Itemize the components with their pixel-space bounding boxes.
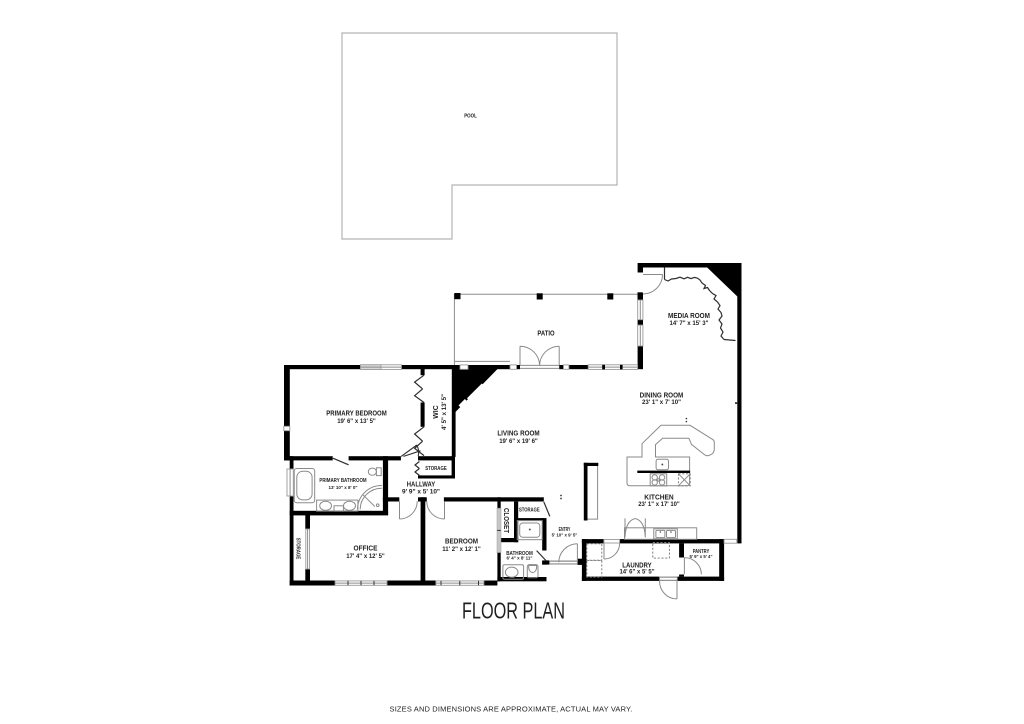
svg-text:WIC: WIC (431, 405, 440, 418)
svg-text:14' 7" x 15' 3": 14' 7" x 15' 3" (670, 320, 709, 327)
svg-text:5' 10" x 9' 5": 5' 10" x 9' 5" (552, 532, 578, 537)
svg-text:CLOSET: CLOSET (502, 508, 511, 534)
svg-text:PATIO: PATIO (537, 329, 555, 338)
svg-text:BEDROOM: BEDROOM (445, 536, 478, 545)
svg-text:23' 1" x 17' 10": 23' 1" x 17' 10" (638, 501, 680, 508)
svg-text:STORAGE: STORAGE (519, 507, 540, 513)
svg-text:LIVING ROOM: LIVING ROOM (497, 429, 539, 438)
svg-text:STORAGE: STORAGE (425, 466, 447, 472)
svg-text:PRIMARY BEDROOM: PRIMARY BEDROOM (326, 409, 387, 418)
svg-text:SIZES AND DIMENSIONS ARE APPRO: SIZES AND DIMENSIONS ARE APPROXIMATE, AC… (390, 705, 633, 714)
svg-text:14' 6" x 5' 5": 14' 6" x 5' 5" (619, 569, 654, 576)
svg-text:STORAGE: STORAGE (295, 538, 301, 560)
svg-text:POOL: POOL (464, 114, 477, 120)
svg-text:11' 2" x 12' 1": 11' 2" x 12' 1" (442, 546, 481, 553)
svg-text:19' 6" x 13' 5": 19' 6" x 13' 5" (337, 418, 376, 425)
svg-text:13' 10" x 8' 0": 13' 10" x 8' 0" (329, 485, 358, 490)
svg-text:23' 1" x 7' 10": 23' 1" x 7' 10" (642, 399, 681, 406)
svg-text:4' 5" x 13' 5": 4' 5" x 13' 5" (441, 394, 448, 430)
svg-text:FLOOR PLAN: FLOOR PLAN (462, 598, 565, 624)
svg-text:19' 6" x 19' 6": 19' 6" x 19' 6" (499, 438, 538, 445)
svg-text:OFFICE: OFFICE (354, 544, 378, 553)
svg-text:MEDIA ROOM: MEDIA ROOM (668, 311, 710, 320)
svg-text:9' 9" x 5' 10": 9' 9" x 5' 10" (402, 489, 440, 496)
svg-text:17' 4" x 12' 5": 17' 4" x 12' 5" (346, 553, 385, 560)
svg-text:HALLWAY: HALLWAY (407, 480, 436, 489)
svg-text:6' 4" x 8' 11": 6' 4" x 8' 11" (507, 556, 533, 561)
svg-text:5' 9" x 5' 4": 5' 9" x 5' 4" (690, 554, 713, 559)
svg-text:PRIMARY BATHROOM: PRIMARY BATHROOM (319, 478, 366, 484)
